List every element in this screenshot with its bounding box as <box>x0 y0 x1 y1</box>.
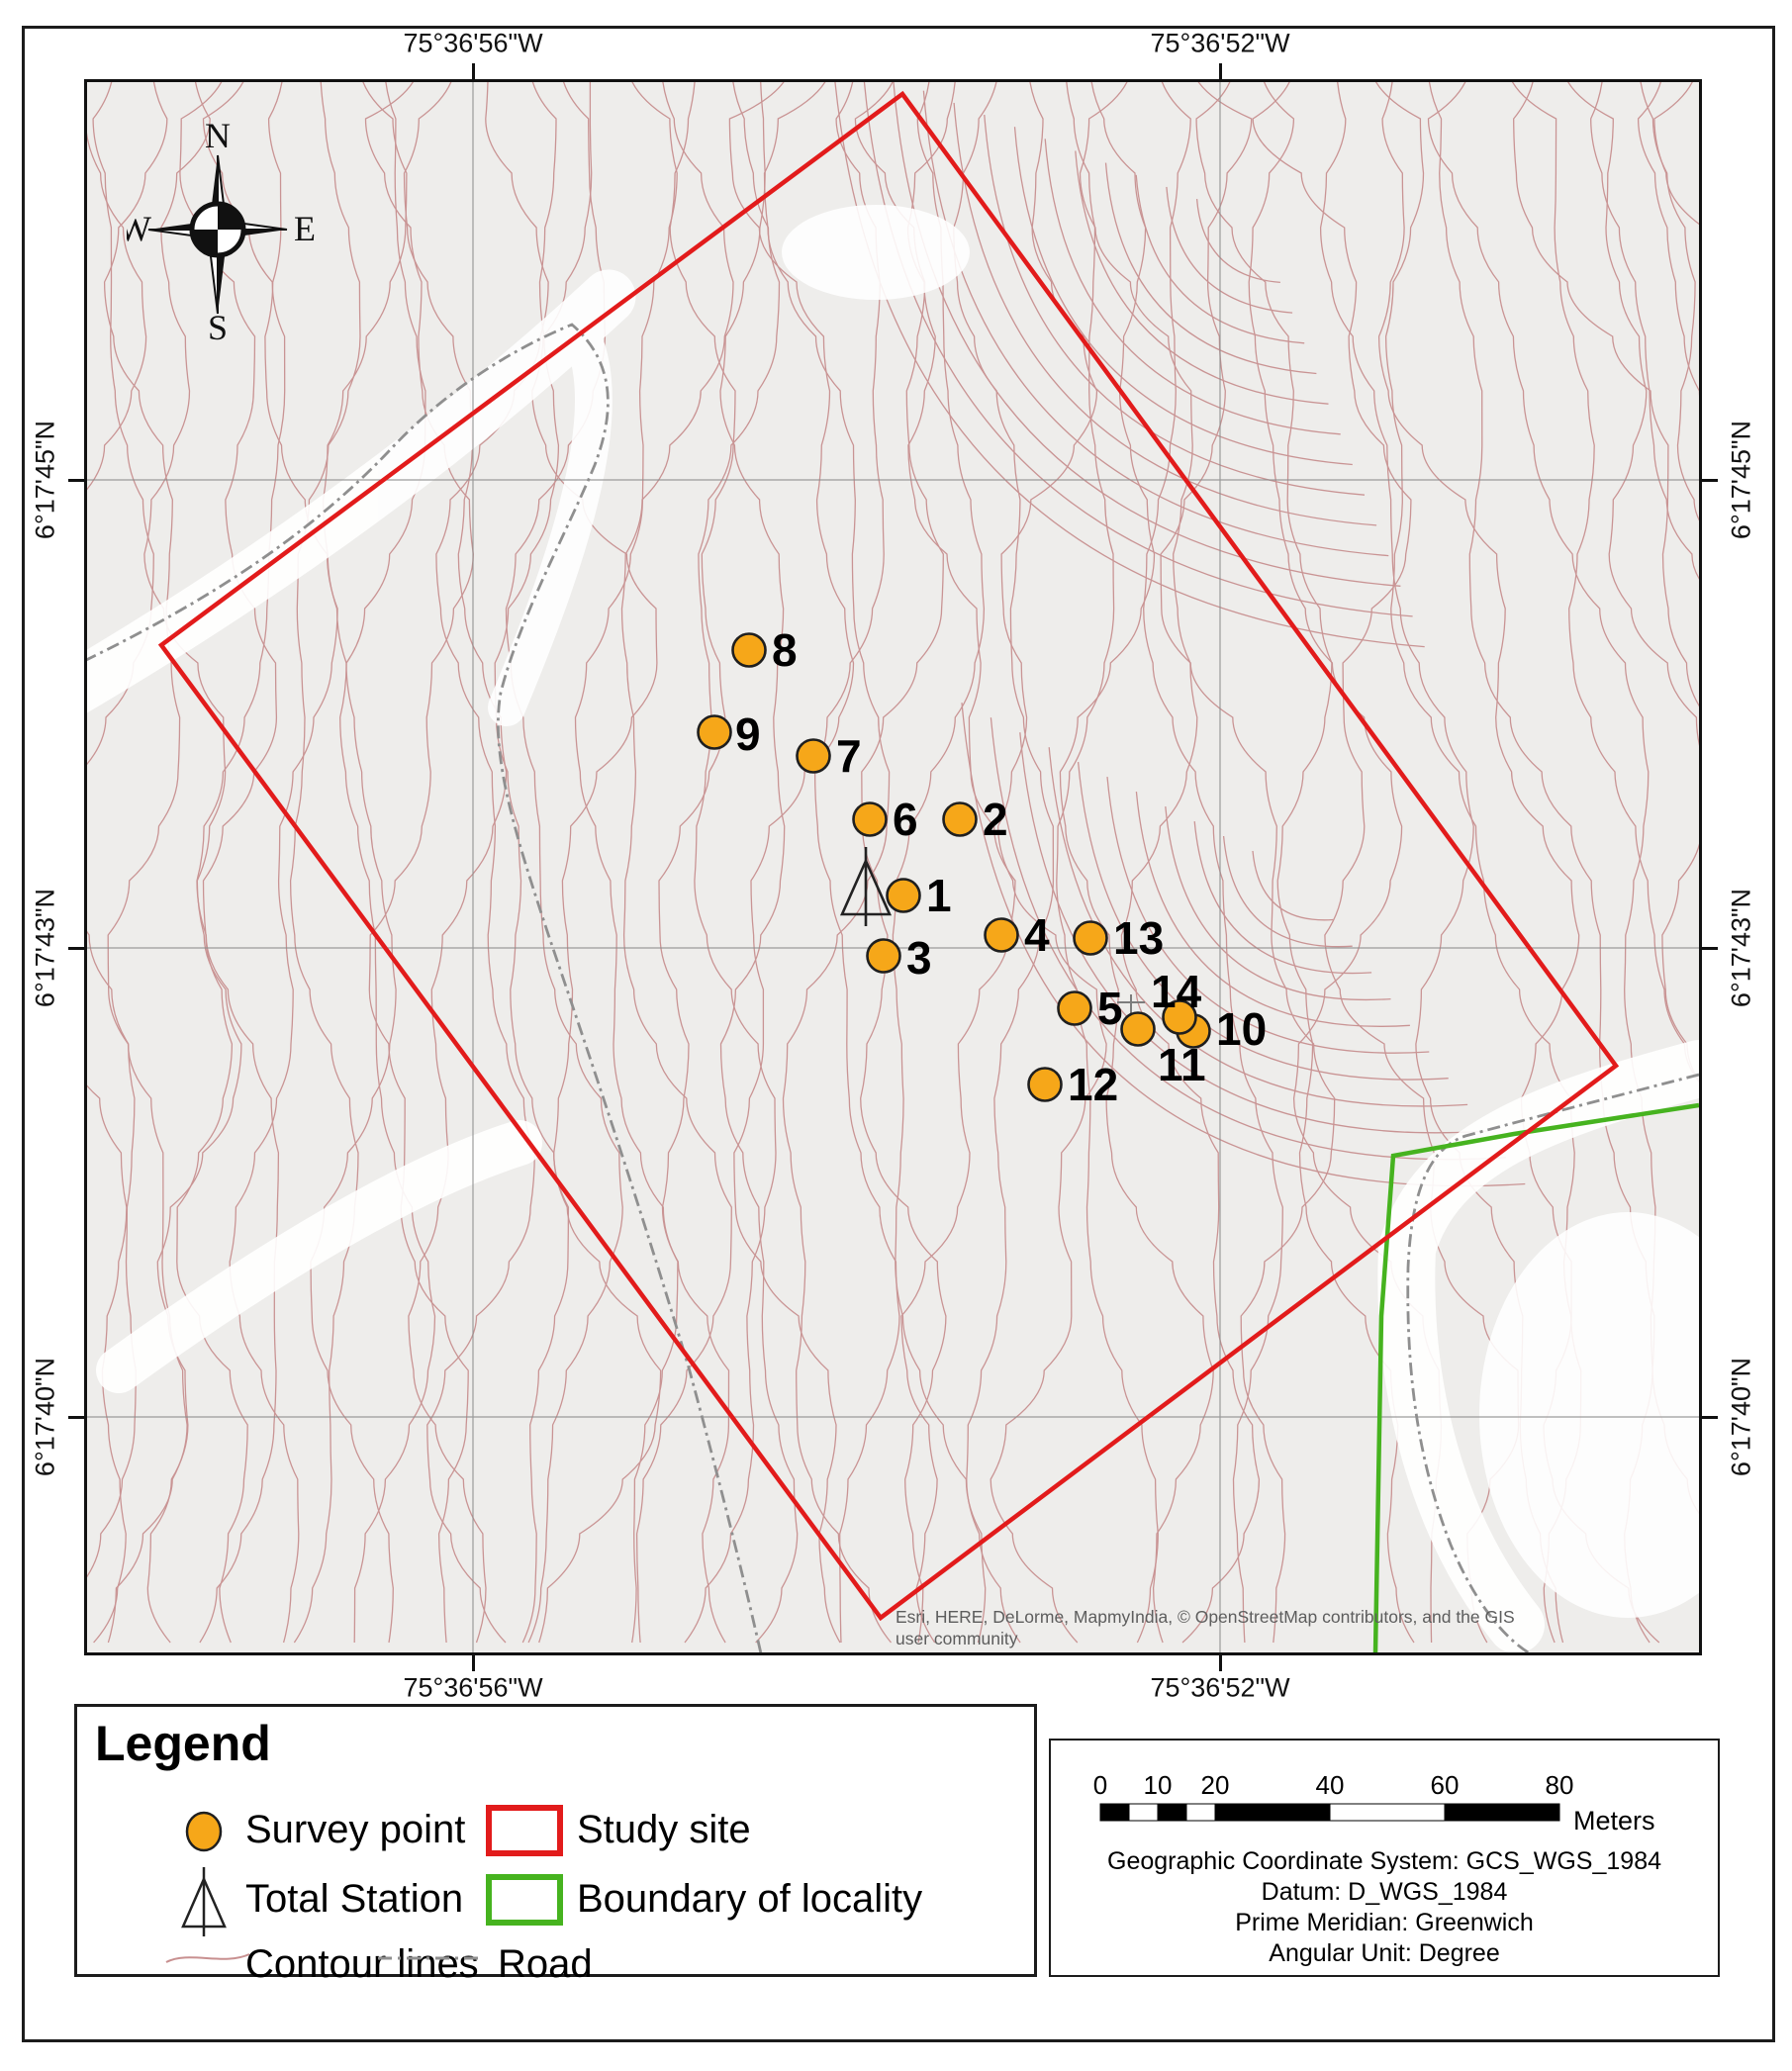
datum-line-0: Geographic Coordinate System: GCS_WGS_19… <box>1051 1847 1718 1876</box>
scale-tick-20: 20 <box>1201 1770 1230 1801</box>
north-arrow: N S W E <box>127 104 315 351</box>
survey-point-4[interactable] <box>986 919 1018 952</box>
datum-line-1: Datum: D_WGS_1984 <box>1051 1878 1718 1907</box>
legend: Legend Survey point Total Station Contou… <box>74 1704 1037 1977</box>
legend-label-road: Road <box>498 1942 593 1987</box>
legend-title: Legend <box>95 1715 271 1772</box>
compass-star <box>148 155 287 314</box>
compass-w-label: W <box>127 209 151 248</box>
survey-point-13[interactable] <box>1075 922 1107 955</box>
survey-point-9[interactable] <box>699 716 731 749</box>
survey-point-label-7: 7 <box>836 730 862 782</box>
survey-point-label-11: 11 <box>1158 1039 1206 1090</box>
scale-box: 01020406080 Meters Geographic Coordinate… <box>1049 1739 1720 1977</box>
survey-point-label-3: 3 <box>906 932 932 984</box>
total-station-swatch <box>171 1863 240 1940</box>
contour-swatch <box>164 1942 253 1972</box>
survey-point-label-5: 5 <box>1097 983 1123 1034</box>
survey-point-11[interactable] <box>1122 1013 1155 1046</box>
scale-tick-80: 80 <box>1546 1770 1574 1801</box>
map-canvas[interactable]: 1234567891011121314Esri, HERE, DeLorme, … <box>84 79 1702 1655</box>
survey-point-1[interactable] <box>888 880 920 912</box>
survey-point-label-4: 4 <box>1024 909 1050 961</box>
scale-tick-40: 40 <box>1316 1770 1345 1801</box>
svg-text:Esri, HERE, DeLorme, MapmyIndi: Esri, HERE, DeLorme, MapmyIndia, © OpenS… <box>896 1607 1515 1627</box>
survey-point-label-10: 10 <box>1216 1003 1267 1055</box>
compass-e-label: E <box>294 209 315 248</box>
scale-tick-10: 10 <box>1144 1770 1173 1801</box>
scale-tick-60: 60 <box>1431 1770 1460 1801</box>
survey-point-8[interactable] <box>733 634 766 667</box>
survey-point-12[interactable] <box>1029 1069 1062 1101</box>
legend-label-total-station: Total Station <box>245 1877 463 1922</box>
survey-point-3[interactable] <box>868 940 900 973</box>
survey-point-label-14: 14 <box>1151 966 1202 1017</box>
scale-bar <box>1090 1798 1645 1828</box>
scale-unit-label: Meters <box>1573 1806 1655 1836</box>
survey-point-label-2: 2 <box>983 794 1008 845</box>
survey-point-6[interactable] <box>854 803 887 836</box>
survey-point-label-6: 6 <box>893 794 918 845</box>
scale-tick-0: 0 <box>1093 1770 1107 1801</box>
survey-point-5[interactable] <box>1059 992 1091 1025</box>
road-swatch <box>374 1946 483 1970</box>
legend-label-study-site: Study site <box>577 1808 751 1852</box>
survey-point-label-1: 1 <box>926 870 952 921</box>
svg-text:user community: user community <box>896 1629 1018 1648</box>
survey-point-7[interactable] <box>798 740 830 773</box>
boundary-swatch <box>485 1873 564 1927</box>
legend-label-boundary: Boundary of locality <box>577 1877 922 1922</box>
map-graphics: 1234567891011121314Esri, HERE, DeLorme, … <box>84 79 1702 1655</box>
survey-point-label-12: 12 <box>1068 1059 1118 1110</box>
survey-point-label-9: 9 <box>735 708 761 760</box>
datum-line-3: Angular Unit: Degree <box>1051 1939 1718 1968</box>
survey-point-label-8: 8 <box>772 624 798 676</box>
datum-line-2: Prime Meridian: Greenwich <box>1051 1909 1718 1937</box>
study-site-swatch <box>485 1804 564 1857</box>
survey-point-swatch <box>171 1802 240 1861</box>
survey-point-2[interactable] <box>944 803 977 836</box>
legend-label-survey-point: Survey point <box>245 1808 465 1852</box>
compass-n-label: N <box>205 116 231 155</box>
survey-point-label-13: 13 <box>1113 912 1164 964</box>
